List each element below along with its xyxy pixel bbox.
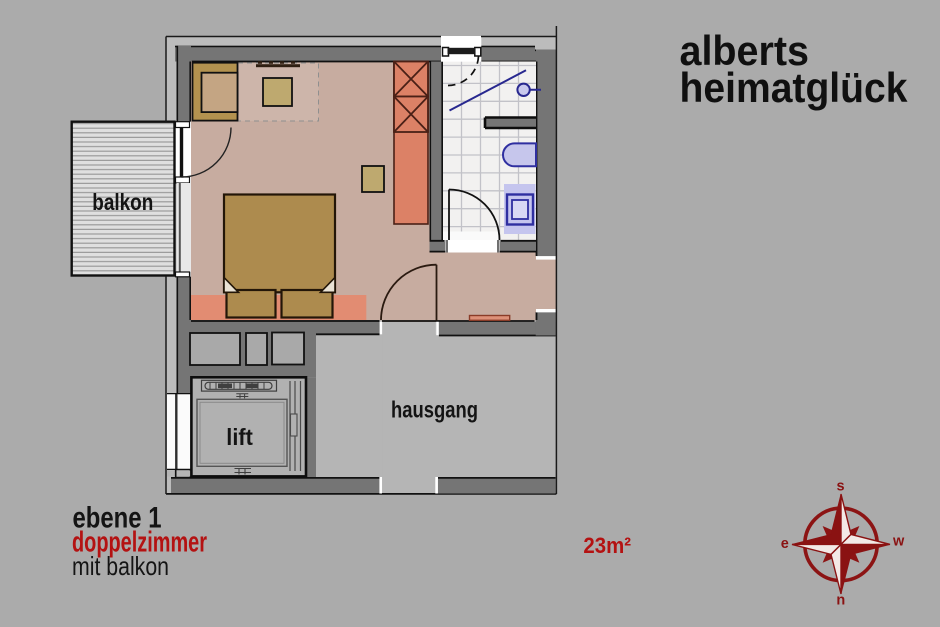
- svg-text:hausgang: hausgang: [391, 397, 478, 423]
- svg-text:w: w: [892, 534, 905, 550]
- svg-text:e: e: [781, 536, 789, 552]
- svg-text:23m²: 23m²: [583, 533, 631, 558]
- svg-text:n: n: [836, 593, 845, 609]
- svg-text:lift: lift: [226, 424, 253, 450]
- svg-text:mit balkon: mit balkon: [72, 551, 169, 581]
- svg-text:balkon: balkon: [92, 189, 153, 215]
- svg-text:heimatglück: heimatglück: [680, 64, 909, 111]
- svg-text:s: s: [836, 479, 844, 495]
